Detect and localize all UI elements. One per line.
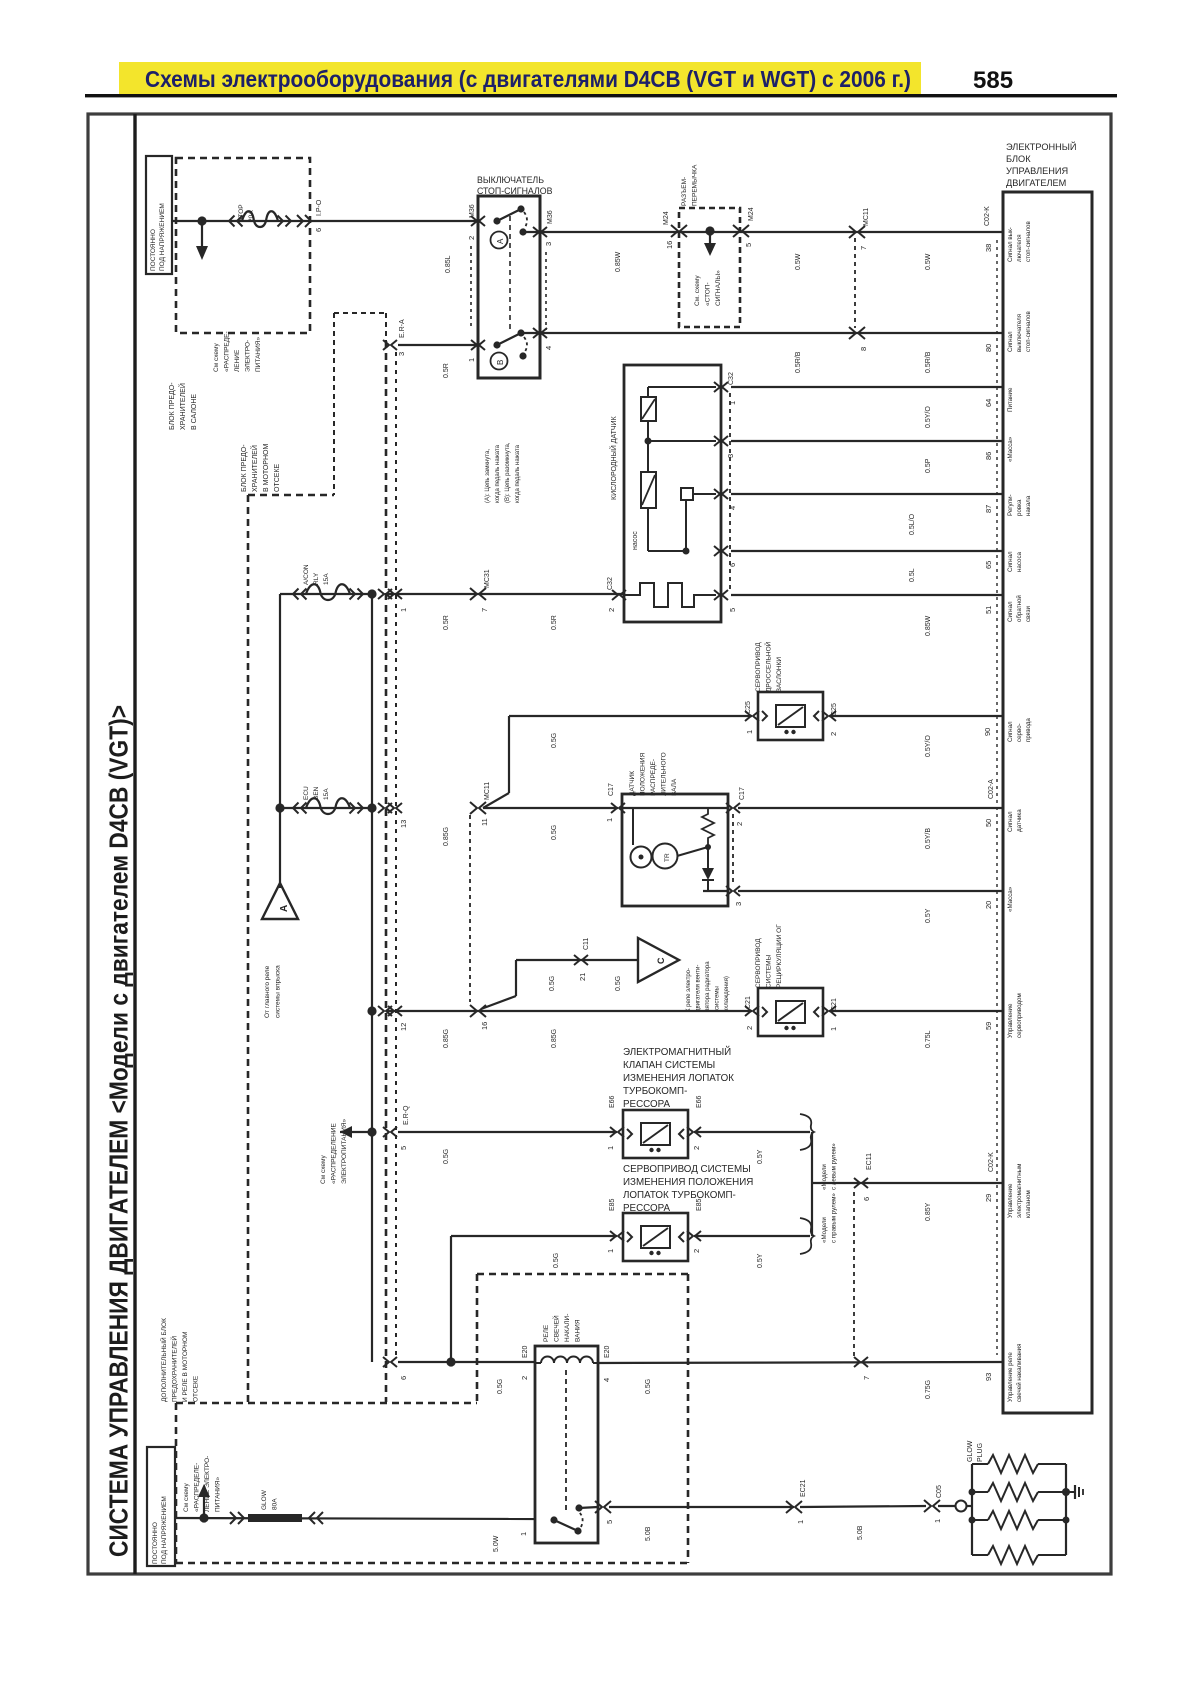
svg-text:0.5G: 0.5G xyxy=(551,825,558,840)
svg-text:15A: 15A xyxy=(323,573,330,585)
svg-text:(B): Цепь разомкнута,: (B): Цепь разомкнута, xyxy=(505,442,511,503)
svg-text:с правым рулем»: с правым рулем» xyxy=(831,1193,838,1243)
svg-text:0.75L: 0.75L xyxy=(925,1030,932,1048)
svg-text:87: 87 xyxy=(984,505,993,513)
svg-text:РАЗЪЕМ-: РАЗЪЕМ- xyxy=(681,177,688,206)
svg-text:ровка: ровка xyxy=(1016,499,1023,516)
svg-text:сервоприводом: сервоприводом xyxy=(1016,993,1023,1038)
svg-text:0.5G: 0.5G xyxy=(615,976,622,991)
svg-text:E66: E66 xyxy=(609,1095,616,1108)
svg-text:0.85G: 0.85G xyxy=(551,1029,558,1048)
svg-text:2: 2 xyxy=(520,1376,529,1380)
svg-text:Управление: Управление xyxy=(1007,1003,1014,1038)
svg-text:1: 1 xyxy=(829,1027,838,1031)
svg-text:ВЫКЛЮЧАТЕЛЬ: ВЫКЛЮЧАТЕЛЬ xyxy=(477,175,544,185)
svg-text:КЛАПАН СИСТЕМЫ: КЛАПАН СИСТЕМЫ xyxy=(623,1060,715,1071)
svg-text:20A: 20A xyxy=(248,210,255,222)
svg-text:C32: C32 xyxy=(607,577,614,590)
svg-text:В САЛОНЕ: В САЛОНЕ xyxy=(191,394,198,430)
svg-text:80: 80 xyxy=(984,344,993,352)
svg-text:Управление реле: Управление реле xyxy=(1007,1352,1014,1402)
svg-text:E85: E85 xyxy=(609,1198,616,1211)
svg-text:0.5R/B: 0.5R/B xyxy=(795,351,802,373)
svg-text:привода: привода xyxy=(1025,718,1032,742)
svg-text:3: 3 xyxy=(734,902,743,906)
svg-text:1: 1 xyxy=(606,1146,615,1150)
svg-text:STOP: STOP xyxy=(238,204,245,222)
svg-text:ОТСЕКЕ: ОТСЕКЕ xyxy=(274,463,281,492)
svg-text:0.5Y: 0.5Y xyxy=(925,908,932,923)
svg-text:ПОД НАПРЯЖЕНИЕМ: ПОД НАПРЯЖЕНИЕМ xyxy=(161,1496,168,1564)
svg-text:C11: C11 xyxy=(583,938,590,950)
svg-text:К реле электро-: К реле электро- xyxy=(686,968,692,1012)
svg-text:«Модели: «Модели xyxy=(821,1164,828,1190)
svg-text:ПЕРЕМЫЧКА: ПЕРЕМЫЧКА xyxy=(692,164,699,206)
svg-text:2: 2 xyxy=(829,732,838,736)
svg-text:«РАСПРЕДЕЛЕНИЕ: «РАСПРЕДЕЛЕНИЕ xyxy=(331,1123,338,1184)
svg-text:Сигнал вык-: Сигнал вык- xyxy=(1007,227,1014,262)
svg-text:2: 2 xyxy=(692,1249,701,1253)
svg-text:M24: M24 xyxy=(748,207,755,221)
svg-text:0.5L/O: 0.5L/O xyxy=(909,513,916,535)
svg-text:ПИТАНИЯ»: ПИТАНИЯ» xyxy=(255,337,262,372)
svg-text:РЕЦИРКУЛЯЦИИ ОГ: РЕЦИРКУЛЯЦИИ ОГ xyxy=(776,924,783,988)
svg-text:GLOW: GLOW xyxy=(261,1489,268,1510)
svg-text:12: 12 xyxy=(399,1023,408,1031)
svg-text:80A: 80A xyxy=(272,1498,279,1510)
svg-text:«Масса»: «Масса» xyxy=(1007,886,1014,912)
svg-text:A: A xyxy=(279,905,290,912)
svg-text:5: 5 xyxy=(605,1520,614,1524)
svg-text:СИГНАЛЫ»: СИГНАЛЫ» xyxy=(715,270,722,306)
svg-text:«Модели: «Модели xyxy=(821,1217,828,1243)
svg-text:ЭЛЕКТРОПИТАНИЯ»: ЭЛЕКТРОПИТАНИЯ» xyxy=(341,1118,348,1184)
svg-text:«Масса»: «Масса» xyxy=(1007,436,1014,462)
svg-text:(системы: (системы xyxy=(715,986,721,1012)
svg-text:РЕССОРА: РЕССОРА xyxy=(623,1099,671,1110)
svg-text:ИЗМЕНЕНИЯ ЛОПАТОК: ИЗМЕНЕНИЯ ЛОПАТОК xyxy=(623,1073,734,1084)
svg-text:Регули-: Регули- xyxy=(1007,494,1014,516)
svg-text:6: 6 xyxy=(728,563,737,567)
svg-text:0.5R: 0.5R xyxy=(551,615,558,630)
svg-text:GLOW: GLOW xyxy=(967,1440,974,1462)
svg-text:15A: 15A xyxy=(323,788,330,800)
svg-text:НАКАЛИ-: НАКАЛИ- xyxy=(564,1314,571,1342)
svg-text:0.5L: 0.5L xyxy=(909,568,916,582)
svg-text:Сигнал: Сигнал xyxy=(1007,601,1014,622)
svg-text:когда педаль нажата: когда педаль нажата xyxy=(515,444,521,503)
svg-text:0.5W: 0.5W xyxy=(795,253,802,270)
svg-text:ТУРБОКОМП-: ТУРБОКОМП- xyxy=(623,1086,687,1097)
svg-text:ЭЛЕКТРОННЫЙ: ЭЛЕКТРОННЫЙ xyxy=(1006,141,1077,152)
svg-text:БЛОК: БЛОК xyxy=(1006,154,1031,164)
svg-text:Сигнал: Сигнал xyxy=(1007,721,1014,742)
svg-text:6: 6 xyxy=(314,228,323,232)
svg-text:1: 1 xyxy=(605,818,614,822)
svg-text:0.75G: 0.75G xyxy=(925,1380,932,1399)
svg-text:ПРЕДОХРАНИТЕЛЕЙ: ПРЕДОХРАНИТЕЛЕЙ xyxy=(170,1336,179,1402)
svg-text:0.85L: 0.85L xyxy=(445,255,452,273)
svg-text:выключателя: выключателя xyxy=(1016,314,1023,352)
svg-text:I.P-O: I.P-O xyxy=(316,199,323,216)
svg-text:См схему: См схему xyxy=(183,1482,190,1512)
svg-text:0.5Y/B: 0.5Y/B xyxy=(925,828,932,849)
svg-text:2: 2 xyxy=(735,822,744,826)
svg-text:1: 1 xyxy=(728,401,737,405)
svg-text:TR: TR xyxy=(664,853,671,862)
svg-text:ВАНИЯ: ВАНИЯ xyxy=(575,1319,582,1342)
svg-text:серво-: серво- xyxy=(1016,723,1023,742)
svg-text:ПОСТОЯННО: ПОСТОЯННО xyxy=(150,229,157,271)
svg-text:0.5Y/O: 0.5Y/O xyxy=(925,735,932,757)
svg-text:8: 8 xyxy=(859,347,868,351)
svg-text:EC21: EC21 xyxy=(800,1479,807,1497)
svg-text:5: 5 xyxy=(744,243,753,247)
svg-text:ЛЕНИЕ: ЛЕНИЕ xyxy=(234,349,241,372)
svg-text:RLY: RLY xyxy=(313,572,320,585)
svg-text:СИСТЕМЫ: СИСТЕМЫ xyxy=(766,954,773,988)
svg-text:0.5G: 0.5G xyxy=(553,1253,560,1268)
svg-text:ПОСТОЯННО: ПОСТОЯННО xyxy=(152,1522,159,1564)
svg-text:И РЕЛЕ В МОТОРНОМ: И РЕЛЕ В МОТОРНОМ xyxy=(182,1332,189,1402)
svg-text:ИЗМЕНЕНИЯ ПОЛОЖЕНИЯ: ИЗМЕНЕНИЯ ПОЛОЖЕНИЯ xyxy=(623,1177,753,1188)
svg-text:E20: E20 xyxy=(604,1345,611,1358)
svg-text:СИСТЕМА УПРАВЛЕНИЯ ДВИГАТЕЛЕМ: СИСТЕМА УПРАВЛЕНИЯ ДВИГАТЕЛЕМ <Модели с … xyxy=(104,705,134,1557)
svg-text:когда педаль нажата: когда педаль нажата xyxy=(495,444,501,503)
svg-text:ДРОССЕЛЬНОЙ: ДРОССЕЛЬНОЙ xyxy=(764,641,773,692)
svg-text:38: 38 xyxy=(984,244,993,252)
svg-text:13: 13 xyxy=(399,820,408,828)
svg-text:5: 5 xyxy=(399,1146,408,1150)
svg-text:0.5P: 0.5P xyxy=(925,458,932,473)
svg-text:0.5R: 0.5R xyxy=(443,363,450,378)
svg-text:0.5G: 0.5G xyxy=(497,1379,504,1394)
svg-text:20: 20 xyxy=(984,901,993,909)
svg-text:ЭЛЕКТРОМАГНИТНЫЙ: ЭЛЕКТРОМАГНИТНЫЙ xyxy=(623,1046,731,1058)
svg-text:1: 1 xyxy=(933,1519,942,1523)
svg-text:системы впрыска: системы впрыска xyxy=(275,965,282,1018)
svg-text:0.5Y: 0.5Y xyxy=(757,1149,764,1164)
svg-text:A/CON: A/CON xyxy=(303,564,310,585)
svg-text:3: 3 xyxy=(726,454,735,458)
svg-text:M24: M24 xyxy=(663,211,670,225)
svg-text:64: 64 xyxy=(984,399,993,407)
svg-text:1: 1 xyxy=(745,730,754,734)
svg-text:ПОД НАПРЯЖЕНИЕМ: ПОД НАПРЯЖЕНИЕМ xyxy=(159,203,166,271)
svg-text:свечей накаливания: свечей накаливания xyxy=(1016,1344,1023,1402)
svg-text:5.0B: 5.0B xyxy=(857,1525,864,1540)
svg-text:обратной: обратной xyxy=(1016,595,1023,622)
svg-text:См схему: См схему xyxy=(320,1154,327,1184)
svg-text:ЗАСЛОНКИ: ЗАСЛОНКИ xyxy=(776,657,783,692)
svg-text:E66: E66 xyxy=(696,1095,703,1108)
svg-text:1: 1 xyxy=(467,358,476,362)
svg-text:16: 16 xyxy=(665,241,674,249)
svg-text:0.5G: 0.5G xyxy=(549,976,556,991)
svg-text:накала: накала xyxy=(1025,495,1032,516)
svg-text:РАСПРЕДЕ-: РАСПРЕДЕ- xyxy=(650,759,657,796)
svg-text:16: 16 xyxy=(480,1022,489,1030)
svg-text:двигателя венти-: двигателя венти- xyxy=(696,965,702,1012)
svg-text:C02-K: C02-K xyxy=(984,206,991,226)
svg-text:90: 90 xyxy=(983,728,992,736)
svg-text:связи: связи xyxy=(1025,606,1032,622)
svg-text:Управление: Управление xyxy=(1007,1183,1014,1218)
svg-text:59: 59 xyxy=(984,1022,993,1030)
svg-text:0.85W: 0.85W xyxy=(615,251,622,272)
svg-text:ЛОПАТОК ТУРБОКОМП-: ЛОПАТОК ТУРБОКОМП- xyxy=(623,1190,736,1201)
svg-text:E.R-A: E.R-A xyxy=(399,319,406,338)
svg-text:C02-A: C02-A xyxy=(988,779,995,799)
svg-text:1: 1 xyxy=(399,608,408,612)
svg-text:0.85G: 0.85G xyxy=(443,1029,450,1048)
svg-text:93: 93 xyxy=(984,1373,993,1381)
svg-text:2: 2 xyxy=(692,1146,701,1150)
svg-text:50: 50 xyxy=(984,819,993,827)
svg-text:29: 29 xyxy=(984,1194,993,1202)
svg-text:4: 4 xyxy=(602,1378,611,1382)
svg-text:ДОПОЛНИТЕЛЬНЫЙ БЛОК: ДОПОЛНИТЕЛЬНЫЙ БЛОК xyxy=(159,1318,168,1402)
svg-text:E.R-Q: E.R-Q xyxy=(403,1105,410,1125)
svg-text:0.5G: 0.5G xyxy=(551,733,558,748)
svg-text:0.5Y: 0.5Y xyxy=(757,1253,764,1268)
svg-text:лючателя: лючателя xyxy=(1016,234,1023,262)
svg-text:«РАСПРЕДЕ-: «РАСПРЕДЕ- xyxy=(224,331,231,372)
svg-text:См схему: См схему xyxy=(213,342,220,372)
svg-text:Сигнал: Сигнал xyxy=(1007,551,1014,572)
svg-text:СЕРВОПРИВОД: СЕРВОПРИВОД xyxy=(755,642,762,692)
svg-text:65: 65 xyxy=(984,561,993,569)
svg-text:5.0B: 5.0B xyxy=(645,1526,652,1541)
svg-text:клапаном: клапаном xyxy=(1025,1190,1032,1218)
svg-text:C: C xyxy=(656,957,666,964)
svg-text:ЭЛЕКТРО-: ЭЛЕКТРО- xyxy=(245,340,252,372)
svg-text:0.5G: 0.5G xyxy=(645,1379,652,1394)
svg-text:C05: C05 xyxy=(936,1485,943,1498)
svg-text:4: 4 xyxy=(544,346,553,350)
svg-text:MC31: MC31 xyxy=(484,569,491,588)
svg-text:СЕРВОПРИВОД СИСТЕМЫ: СЕРВОПРИВОД СИСТЕМЫ xyxy=(623,1164,751,1175)
svg-text:0.85Y: 0.85Y xyxy=(925,1202,932,1221)
svg-text:86: 86 xyxy=(984,452,993,460)
svg-text:УПРАВЛЕНИЯ: УПРАВЛЕНИЯ xyxy=(1006,166,1068,176)
svg-text:21: 21 xyxy=(578,973,587,981)
svg-text:В МОТОРНОМ: В МОТОРНОМ xyxy=(263,444,270,492)
svg-text:11: 11 xyxy=(480,818,489,826)
svg-text:Сигнал: Сигнал xyxy=(1007,811,1014,832)
svg-text:лятора радиатора: лятора радиатора xyxy=(705,961,711,1012)
svg-text:C02-K: C02-K xyxy=(988,1152,995,1172)
svg-text:1: 1 xyxy=(796,1520,805,1524)
svg-text:MC11: MC11 xyxy=(484,782,491,800)
svg-text:ПИТАНИЯ»: ПИТАНИЯ» xyxy=(215,1477,222,1512)
svg-text:MC11: MC11 xyxy=(863,208,870,226)
svg-text:3: 3 xyxy=(397,352,406,356)
svg-text:насоса: насоса xyxy=(1016,551,1023,572)
svg-text:ДВИГАТЕЛЕМ: ДВИГАТЕЛЕМ xyxy=(1006,178,1066,188)
svg-text:6: 6 xyxy=(862,1197,871,1201)
svg-text:Схемы электрооборудования (с д: Схемы электрооборудования (с двигателями… xyxy=(145,66,911,92)
svg-text:C32: C32 xyxy=(728,372,735,385)
svg-text:ХРАНИТЕЛЕЙ: ХРАНИТЕЛЕЙ xyxy=(178,383,187,430)
svg-text:4: 4 xyxy=(728,506,737,510)
svg-text:стоп-сигналов: стоп-сигналов xyxy=(1025,221,1032,262)
svg-text:БЛОК ПРЕДО-: БЛОК ПРЕДО- xyxy=(169,382,176,430)
svg-text:2: 2 xyxy=(467,236,476,240)
svg-text:охлаждения): охлаждения) xyxy=(724,976,730,1012)
svg-text:C17: C17 xyxy=(608,783,615,796)
svg-text:7: 7 xyxy=(862,1376,871,1380)
svg-text:КИСЛОРОДНЫЙ ДАТЧИК: КИСЛОРОДНЫЙ ДАТЧИК xyxy=(609,415,618,500)
svg-text:ЛИТЕЛЬНОГО: ЛИТЕЛЬНОГО xyxy=(661,752,668,796)
svg-text:электромагнитным: электромагнитным xyxy=(1016,1164,1023,1218)
svg-text:0.5R/B: 0.5R/B xyxy=(925,351,932,373)
svg-text:5: 5 xyxy=(728,608,737,612)
svg-text:ХРАНИТЕЛЕЙ: ХРАНИТЕЛЕЙ xyxy=(250,445,259,492)
svg-text:585: 585 xyxy=(973,67,1013,94)
svg-text:ДАТЧИК: ДАТЧИК xyxy=(629,771,636,796)
svg-text:СЕРВОПРИВОД: СЕРВОПРИВОД xyxy=(755,938,762,988)
svg-text:(A): Цепь замкнута,: (A): Цепь замкнута, xyxy=(485,449,491,503)
svg-text:E85: E85 xyxy=(696,1198,703,1211)
svg-text:ЛЕНИЕ ЭЛЕКТРО-: ЛЕНИЕ ЭЛЕКТРО- xyxy=(204,1456,211,1512)
svg-text:1: 1 xyxy=(606,1249,615,1253)
svg-text:«СТОП-: «СТОП- xyxy=(705,282,712,306)
svg-text:M36: M36 xyxy=(547,210,554,224)
svg-text:От главного реле: От главного реле xyxy=(264,965,271,1018)
svg-text:51: 51 xyxy=(984,606,993,614)
svg-text:БЛОК ПРЕДО-: БЛОК ПРЕДО- xyxy=(241,444,248,492)
svg-text:насос: насос xyxy=(632,531,639,550)
svg-text:6: 6 xyxy=(399,1376,408,1380)
svg-text:5.0W: 5.0W xyxy=(493,1535,500,1552)
svg-text:0.5W: 0.5W xyxy=(925,253,932,270)
svg-text:«РАСПРЕДЕЛЕ-: «РАСПРЕДЕЛЕ- xyxy=(194,1463,201,1512)
svg-text:ОТСЕКЕ: ОТСЕКЕ xyxy=(193,1375,200,1402)
svg-text:0.85W: 0.85W xyxy=(925,615,932,636)
svg-text:СВЕЧЕЙ: СВЕЧЕЙ xyxy=(552,1315,561,1342)
svg-text:B: B xyxy=(496,360,505,365)
svg-text:3: 3 xyxy=(544,242,553,246)
svg-text:2: 2 xyxy=(745,1026,754,1030)
svg-text:E20: E20 xyxy=(522,1345,529,1358)
svg-text:0.5G: 0.5G xyxy=(443,1149,450,1164)
svg-text:датчика: датчика xyxy=(1016,809,1023,832)
svg-text:PLUG: PLUG xyxy=(977,1443,984,1462)
svg-text:ECU: ECU xyxy=(303,786,310,800)
svg-text:0.5Y/O: 0.5Y/O xyxy=(925,406,932,428)
svg-text:7: 7 xyxy=(859,246,868,250)
svg-text:2: 2 xyxy=(607,608,616,612)
svg-text:EC11: EC11 xyxy=(866,1153,873,1170)
svg-text:РЕЛЕ: РЕЛЕ xyxy=(543,1324,550,1342)
svg-text:M36: M36 xyxy=(469,204,476,218)
svg-text:A: A xyxy=(496,238,505,244)
svg-text:стоп-сигналов: стоп-сигналов xyxy=(1025,311,1032,352)
svg-text:Питание: Питание xyxy=(1007,387,1014,412)
svg-text:См. схему: См. схему xyxy=(694,275,701,306)
svg-text:Сигнал: Сигнал xyxy=(1007,331,1014,352)
svg-text:0.5R: 0.5R xyxy=(443,615,450,630)
svg-text:1: 1 xyxy=(519,1532,528,1536)
svg-text:7: 7 xyxy=(480,608,489,612)
svg-text:BEN: BEN xyxy=(313,786,320,800)
svg-text:ПОЛОЖЕНИЯ: ПОЛОЖЕНИЯ xyxy=(640,752,647,796)
svg-text:C17: C17 xyxy=(739,787,746,800)
svg-text:0.85G: 0.85G xyxy=(443,827,450,846)
